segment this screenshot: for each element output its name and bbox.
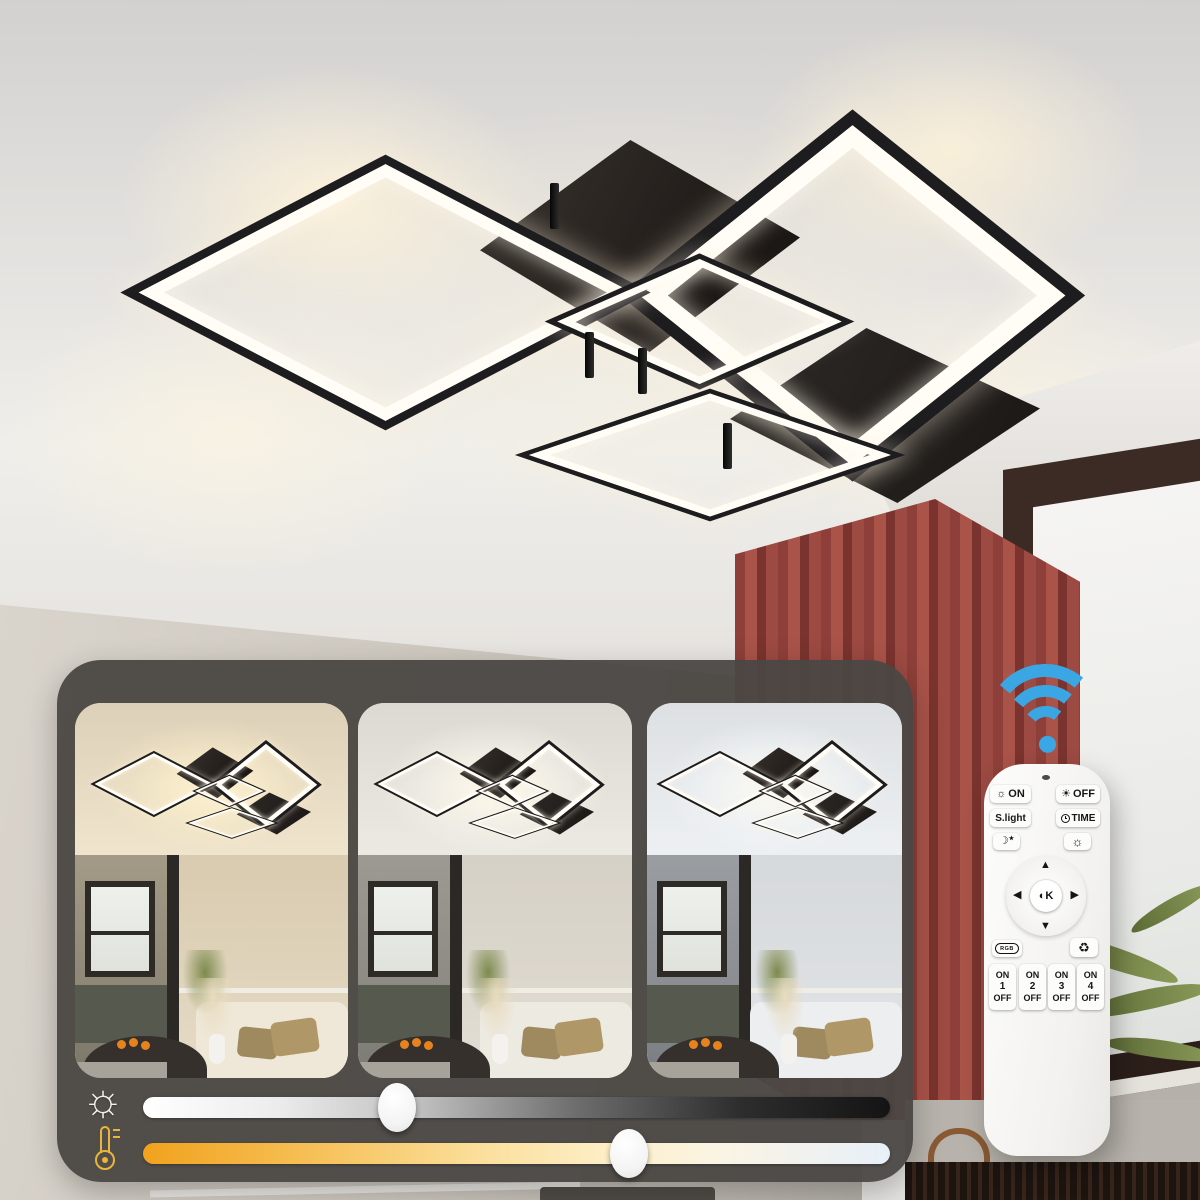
- brightness-sun-icon: ☼: [1072, 835, 1084, 848]
- brightness-slider[interactable]: [143, 1097, 890, 1118]
- thumbnail-cool-white[interactable]: [647, 703, 902, 1078]
- thumb-cabinet: [75, 985, 167, 1043]
- ceiling-lamp-thumbnail: [649, 733, 894, 846]
- thumb-pillow: [270, 1017, 320, 1057]
- moon-icon: ☽: [999, 836, 1009, 847]
- thumbnail-warm-white[interactable]: [75, 703, 348, 1078]
- channel-on-label: ON: [996, 970, 1010, 981]
- channel-on-label: ON: [1084, 970, 1098, 981]
- thumb-orange: [141, 1041, 150, 1050]
- thumb-window: [85, 881, 155, 977]
- thumb-vase: [781, 1034, 797, 1064]
- thumb-vase: [209, 1034, 225, 1064]
- control-panel: ☼: [57, 660, 913, 1182]
- arrow-right-button[interactable]: ▶: [1071, 890, 1079, 901]
- timer-label: TIME: [1072, 813, 1096, 824]
- thermometer-stem: [100, 1126, 110, 1153]
- channel-off-label: OFF: [1024, 993, 1042, 1004]
- thermometer-bulb: [95, 1150, 115, 1170]
- arrow-up-button[interactable]: ▲: [1040, 860, 1051, 871]
- recycle-icon: ♻: [1078, 941, 1090, 954]
- channel-number: 3: [1059, 981, 1065, 993]
- clock-icon: [1061, 814, 1070, 823]
- thumb-orange: [713, 1041, 722, 1050]
- day-mode-button[interactable]: ☼: [1064, 833, 1091, 850]
- thumbnail-natural-white[interactable]: [358, 703, 632, 1078]
- thermometer-tick: [113, 1129, 120, 1131]
- sun-outline-icon: ☼: [996, 789, 1006, 800]
- brightness-icon: ☼: [77, 1074, 129, 1126]
- product-image: ☼ ☼ ON ☀ OFF S.light: [0, 0, 1200, 1200]
- thumb-window: [368, 881, 438, 977]
- ir-emitter: [1042, 775, 1050, 780]
- rgb-cycle-icon: RGB: [995, 943, 1019, 954]
- scene-light-button[interactable]: S.light: [990, 809, 1031, 827]
- channel-number: 4: [1088, 981, 1094, 993]
- thermometer-tick: [113, 1136, 120, 1138]
- thumb-pampas: [193, 978, 233, 1042]
- remote-control: ☼ ON ☀ OFF S.light TIME ☽ ★ ☼ ▲ ▼ ◀ ▶ ◐: [984, 764, 1110, 1156]
- star-icon: ★: [1009, 835, 1014, 842]
- cycle-mode-button[interactable]: ♻: [1070, 938, 1098, 957]
- wifi-icon: [978, 659, 1110, 761]
- channel-number: 2: [1030, 981, 1036, 993]
- thumb-orange: [117, 1040, 126, 1049]
- thumb-floor: [358, 1062, 450, 1078]
- arrow-down-button[interactable]: ▼: [1040, 921, 1051, 932]
- arrow-left-button[interactable]: ◀: [1013, 890, 1021, 901]
- power-on-label: ON: [1008, 788, 1025, 800]
- timer-button[interactable]: TIME: [1056, 809, 1100, 827]
- brightness-knob[interactable]: [378, 1083, 416, 1132]
- thumb-orange: [424, 1041, 433, 1050]
- thumb-window-bar: [91, 931, 149, 935]
- thumb-room: [647, 855, 902, 1078]
- color-temp-toggle-button[interactable]: ◐ K: [1030, 880, 1062, 912]
- thumb-window-bar: [663, 931, 721, 935]
- channel-number: 1: [1000, 981, 1006, 993]
- temp-knob[interactable]: [610, 1129, 648, 1178]
- thumb-vase: [492, 1034, 508, 1064]
- thumb-orange: [412, 1038, 421, 1047]
- night-mode-button[interactable]: ☽ ★: [993, 833, 1020, 850]
- scene-light-label: S.light: [995, 813, 1026, 824]
- thumb-pampas: [765, 978, 805, 1042]
- channel-off-label: OFF: [1053, 993, 1071, 1004]
- half-circle-icon: ◐: [1039, 891, 1046, 902]
- thumb-orange: [701, 1038, 710, 1047]
- kelvin-label: K: [1045, 890, 1053, 902]
- rgb-cycle-button[interactable]: RGB: [992, 940, 1022, 957]
- channel-4-button[interactable]: ON 4 OFF: [1077, 964, 1104, 1010]
- channel-3-button[interactable]: ON 3 OFF: [1048, 964, 1075, 1010]
- channel-2-button[interactable]: ON 2 OFF: [1019, 964, 1046, 1010]
- color-temperature-icon: [93, 1126, 121, 1172]
- channel-off-label: OFF: [1082, 993, 1100, 1004]
- sun-filled-icon: ☀: [1061, 789, 1071, 800]
- color-temperature-slider[interactable]: [143, 1143, 890, 1164]
- thumb-pampas: [476, 978, 516, 1042]
- ceiling-lamp-thumbnail: [366, 733, 611, 846]
- thumb-pillow: [824, 1017, 874, 1057]
- lamp-rod: [585, 332, 594, 378]
- thumb-room: [75, 855, 348, 1078]
- thumb-cabinet: [647, 985, 739, 1043]
- thumb-floor: [647, 1062, 739, 1078]
- thumb-window: [657, 881, 727, 977]
- channel-off-label: OFF: [994, 993, 1012, 1004]
- sideboard: [540, 1187, 715, 1200]
- thumb-orange: [400, 1040, 409, 1049]
- radiator: [905, 1162, 1200, 1200]
- lamp-rod: [723, 423, 732, 469]
- lamp-rod: [638, 348, 647, 394]
- power-on-button[interactable]: ☼ ON: [990, 785, 1031, 803]
- power-off-button[interactable]: ☀ OFF: [1056, 785, 1100, 803]
- thumb-pillow: [554, 1017, 604, 1057]
- thumb-window-bar: [374, 931, 432, 935]
- lamp-rod: [550, 183, 559, 229]
- channel-on-label: ON: [1055, 970, 1069, 981]
- ceiling-lamp: [90, 80, 1110, 550]
- power-off-label: OFF: [1073, 788, 1095, 800]
- direction-pad: ▲ ▼ ◀ ▶ ◐ K: [1006, 856, 1086, 936]
- thumb-room: [358, 855, 632, 1078]
- thumb-orange: [689, 1040, 698, 1049]
- channel-on-label: ON: [1026, 970, 1040, 981]
- ceiling-lamp-thumbnail: [83, 733, 328, 846]
- thumb-cabinet: [358, 985, 450, 1043]
- channel-1-button[interactable]: ON 1 OFF: [989, 964, 1016, 1010]
- thumb-orange: [129, 1038, 138, 1047]
